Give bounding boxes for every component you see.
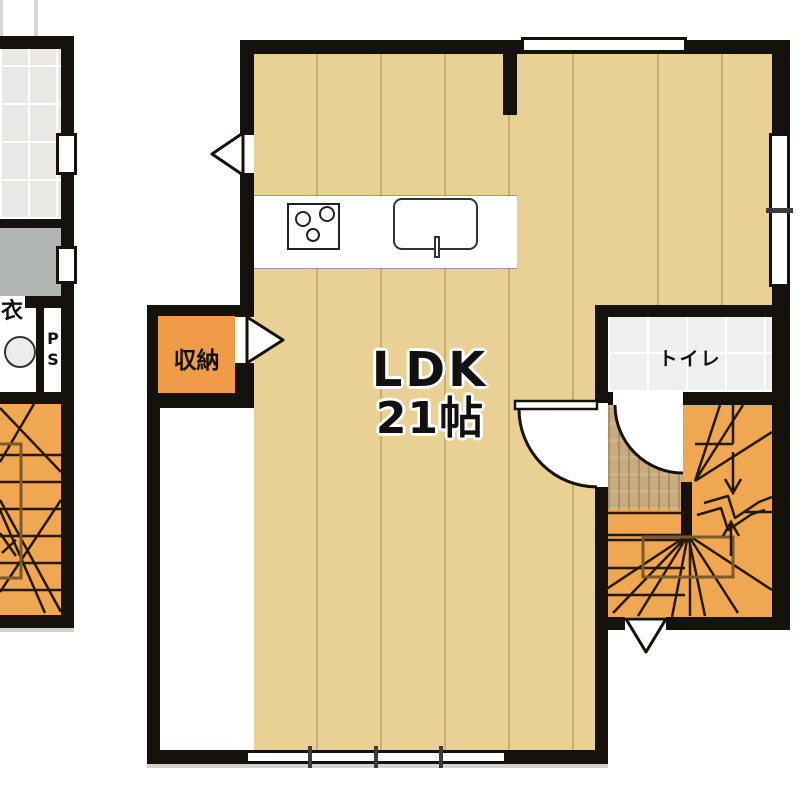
wall xyxy=(36,308,44,392)
utility-room-floor xyxy=(0,228,61,296)
stair-hall-floor xyxy=(608,405,684,510)
pipe-space-label-s: S xyxy=(44,349,62,370)
wall xyxy=(25,296,61,308)
door-opening xyxy=(613,392,683,405)
wall xyxy=(595,305,608,763)
window-mullion xyxy=(374,746,378,768)
wall xyxy=(0,392,61,404)
wall xyxy=(61,36,74,628)
upper-floor-ghost-wall xyxy=(34,0,38,36)
wall-shadow xyxy=(0,628,74,632)
closet-door-opening xyxy=(235,317,254,363)
upper-floor-ghost-wall xyxy=(0,0,3,36)
ldk-name: LDK xyxy=(320,346,540,396)
wall xyxy=(772,40,790,628)
left-staircase xyxy=(0,404,61,615)
toilet-label: トイレ xyxy=(608,344,772,371)
ldk-size: 21帖 xyxy=(320,396,540,442)
wall xyxy=(595,305,790,317)
ldk-wood-floor xyxy=(595,54,772,305)
pipe-space-label-p: P xyxy=(44,328,62,349)
door-opening xyxy=(625,617,666,630)
window-mullion xyxy=(308,746,312,768)
window xyxy=(521,37,687,53)
door-opening xyxy=(595,403,608,487)
closet-label: 収納 xyxy=(158,341,235,375)
window xyxy=(56,246,77,284)
stove-burner-icon xyxy=(319,206,335,222)
stove-burner-icon xyxy=(295,211,311,227)
room-label-ldk: LDK 21帖 xyxy=(320,346,540,442)
washing-machine-icon xyxy=(4,336,36,368)
dressing-room-label: 衣 xyxy=(1,293,23,325)
floor-plan: P S 衣 xyxy=(0,0,800,800)
wall xyxy=(0,219,61,228)
door-opening xyxy=(238,135,254,173)
wall xyxy=(147,395,160,763)
bathroom-tiled-floor xyxy=(0,49,61,219)
wall xyxy=(681,482,692,537)
window-mullion xyxy=(439,746,443,768)
pipe-space-label: P S xyxy=(44,328,62,370)
faucet-icon xyxy=(434,236,440,258)
window-mullion xyxy=(766,208,793,213)
wall xyxy=(503,54,517,115)
wall xyxy=(240,40,790,54)
window xyxy=(56,133,77,175)
stove-burner-icon xyxy=(306,228,320,242)
